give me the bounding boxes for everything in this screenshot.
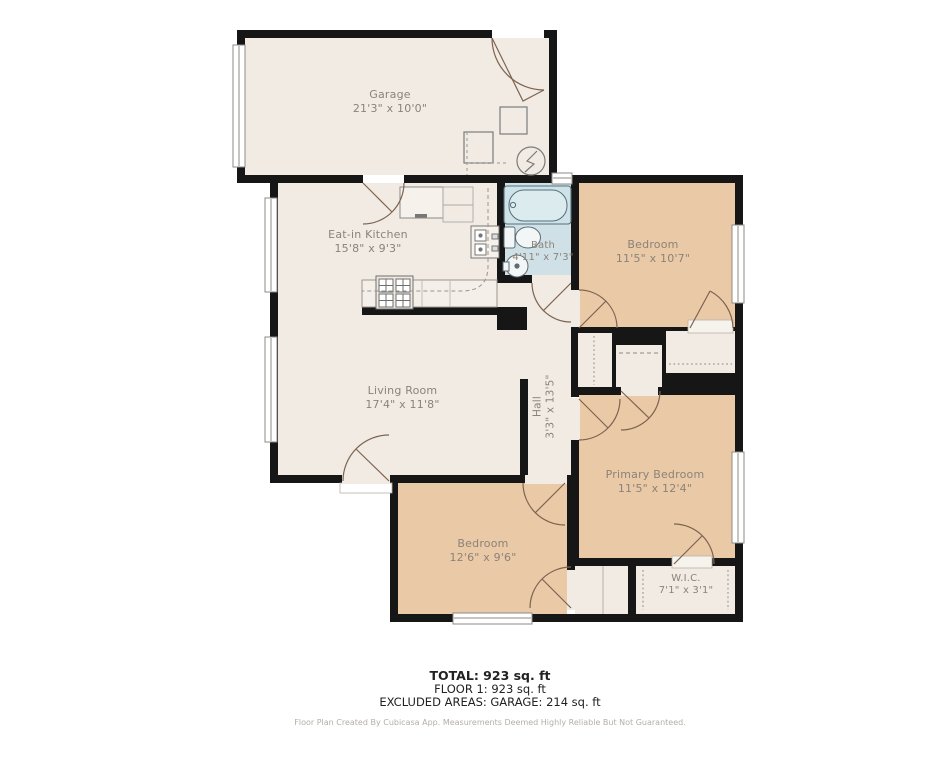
window — [552, 173, 572, 184]
floor-plan-svg — [0, 0, 946, 768]
room-dims: 4'11" x 7'3" — [493, 252, 593, 264]
room-name: Bedroom — [588, 238, 718, 252]
room-dims: 11'5" x 12'4" — [580, 482, 730, 496]
wic-label: W.I.C. 7'1" x 3'1" — [636, 573, 736, 597]
window — [453, 613, 532, 624]
primary-bedroom-label: Primary Bedroom 11'5" x 12'4" — [580, 468, 730, 495]
room-dims: 11'5" x 10'7" — [588, 252, 718, 266]
bedroom-bottom-label: Bedroom 12'6" x 9'6" — [418, 537, 548, 564]
excluded-area-text: EXCLUDED AREAS: GARAGE: 214 sq. ft — [190, 696, 790, 709]
window — [732, 452, 744, 543]
room-name: W.I.C. — [636, 573, 736, 585]
eat-in-kitchen-label: Eat-in Kitchen 15'8" x 9'3" — [298, 228, 438, 255]
floor-fills — [241, 34, 737, 614]
bath-label: Bath 4'11" x 7'3" — [493, 240, 593, 264]
water-heater-icon — [517, 147, 545, 175]
bathtub-icon — [504, 186, 571, 224]
garage-label: Garage 21'3" x 10'0" — [325, 88, 455, 115]
floor-plan: Garage 21'3" x 10'0" Eat-in Kitchen 15'8… — [0, 0, 946, 768]
room-dims: 3'3" x 13'5" — [544, 352, 557, 462]
room-name: Living Room — [335, 384, 470, 398]
window — [265, 337, 277, 442]
room-dims: 12'6" x 9'6" — [418, 551, 548, 565]
bedroom-top-label: Bedroom 11'5" x 10'7" — [588, 238, 718, 265]
bottom-closet-floor — [575, 566, 628, 614]
hall-label: Hall 3'3" x 13'5" — [532, 352, 557, 462]
room-name: Primary Bedroom — [580, 468, 730, 482]
room-name: Eat-in Kitchen — [298, 228, 438, 242]
total-area-text: TOTAL: 923 sq. ft — [190, 669, 790, 683]
room-name: Bath — [493, 240, 593, 252]
room-name: Garage — [325, 88, 455, 102]
room-name: Bedroom — [418, 537, 548, 551]
room-dims: 17'4" x 11'8" — [335, 398, 470, 412]
window — [732, 225, 744, 303]
garage-door — [233, 45, 245, 167]
room-dims: 15'8" x 9'3" — [298, 242, 438, 256]
primary-closet-floor — [616, 345, 662, 389]
hall-closet-floor — [578, 333, 612, 387]
bedroom-top-closet-floor — [666, 331, 735, 373]
window — [265, 198, 277, 292]
living-room-label: Living Room 17'4" x 11'8" — [335, 384, 470, 411]
room-dims: 21'3" x 10'0" — [325, 102, 455, 116]
disclaimer-text: Floor Plan Created By Cubicasa App. Meas… — [190, 718, 790, 728]
summary-footer: TOTAL: 923 sq. ft FLOOR 1: 923 sq. ft EX… — [190, 669, 790, 728]
stove-icon — [376, 276, 413, 309]
room-name: Hall — [532, 352, 545, 462]
refrigerator-icon — [400, 187, 443, 218]
room-dims: 7'1" x 3'1" — [636, 585, 736, 597]
